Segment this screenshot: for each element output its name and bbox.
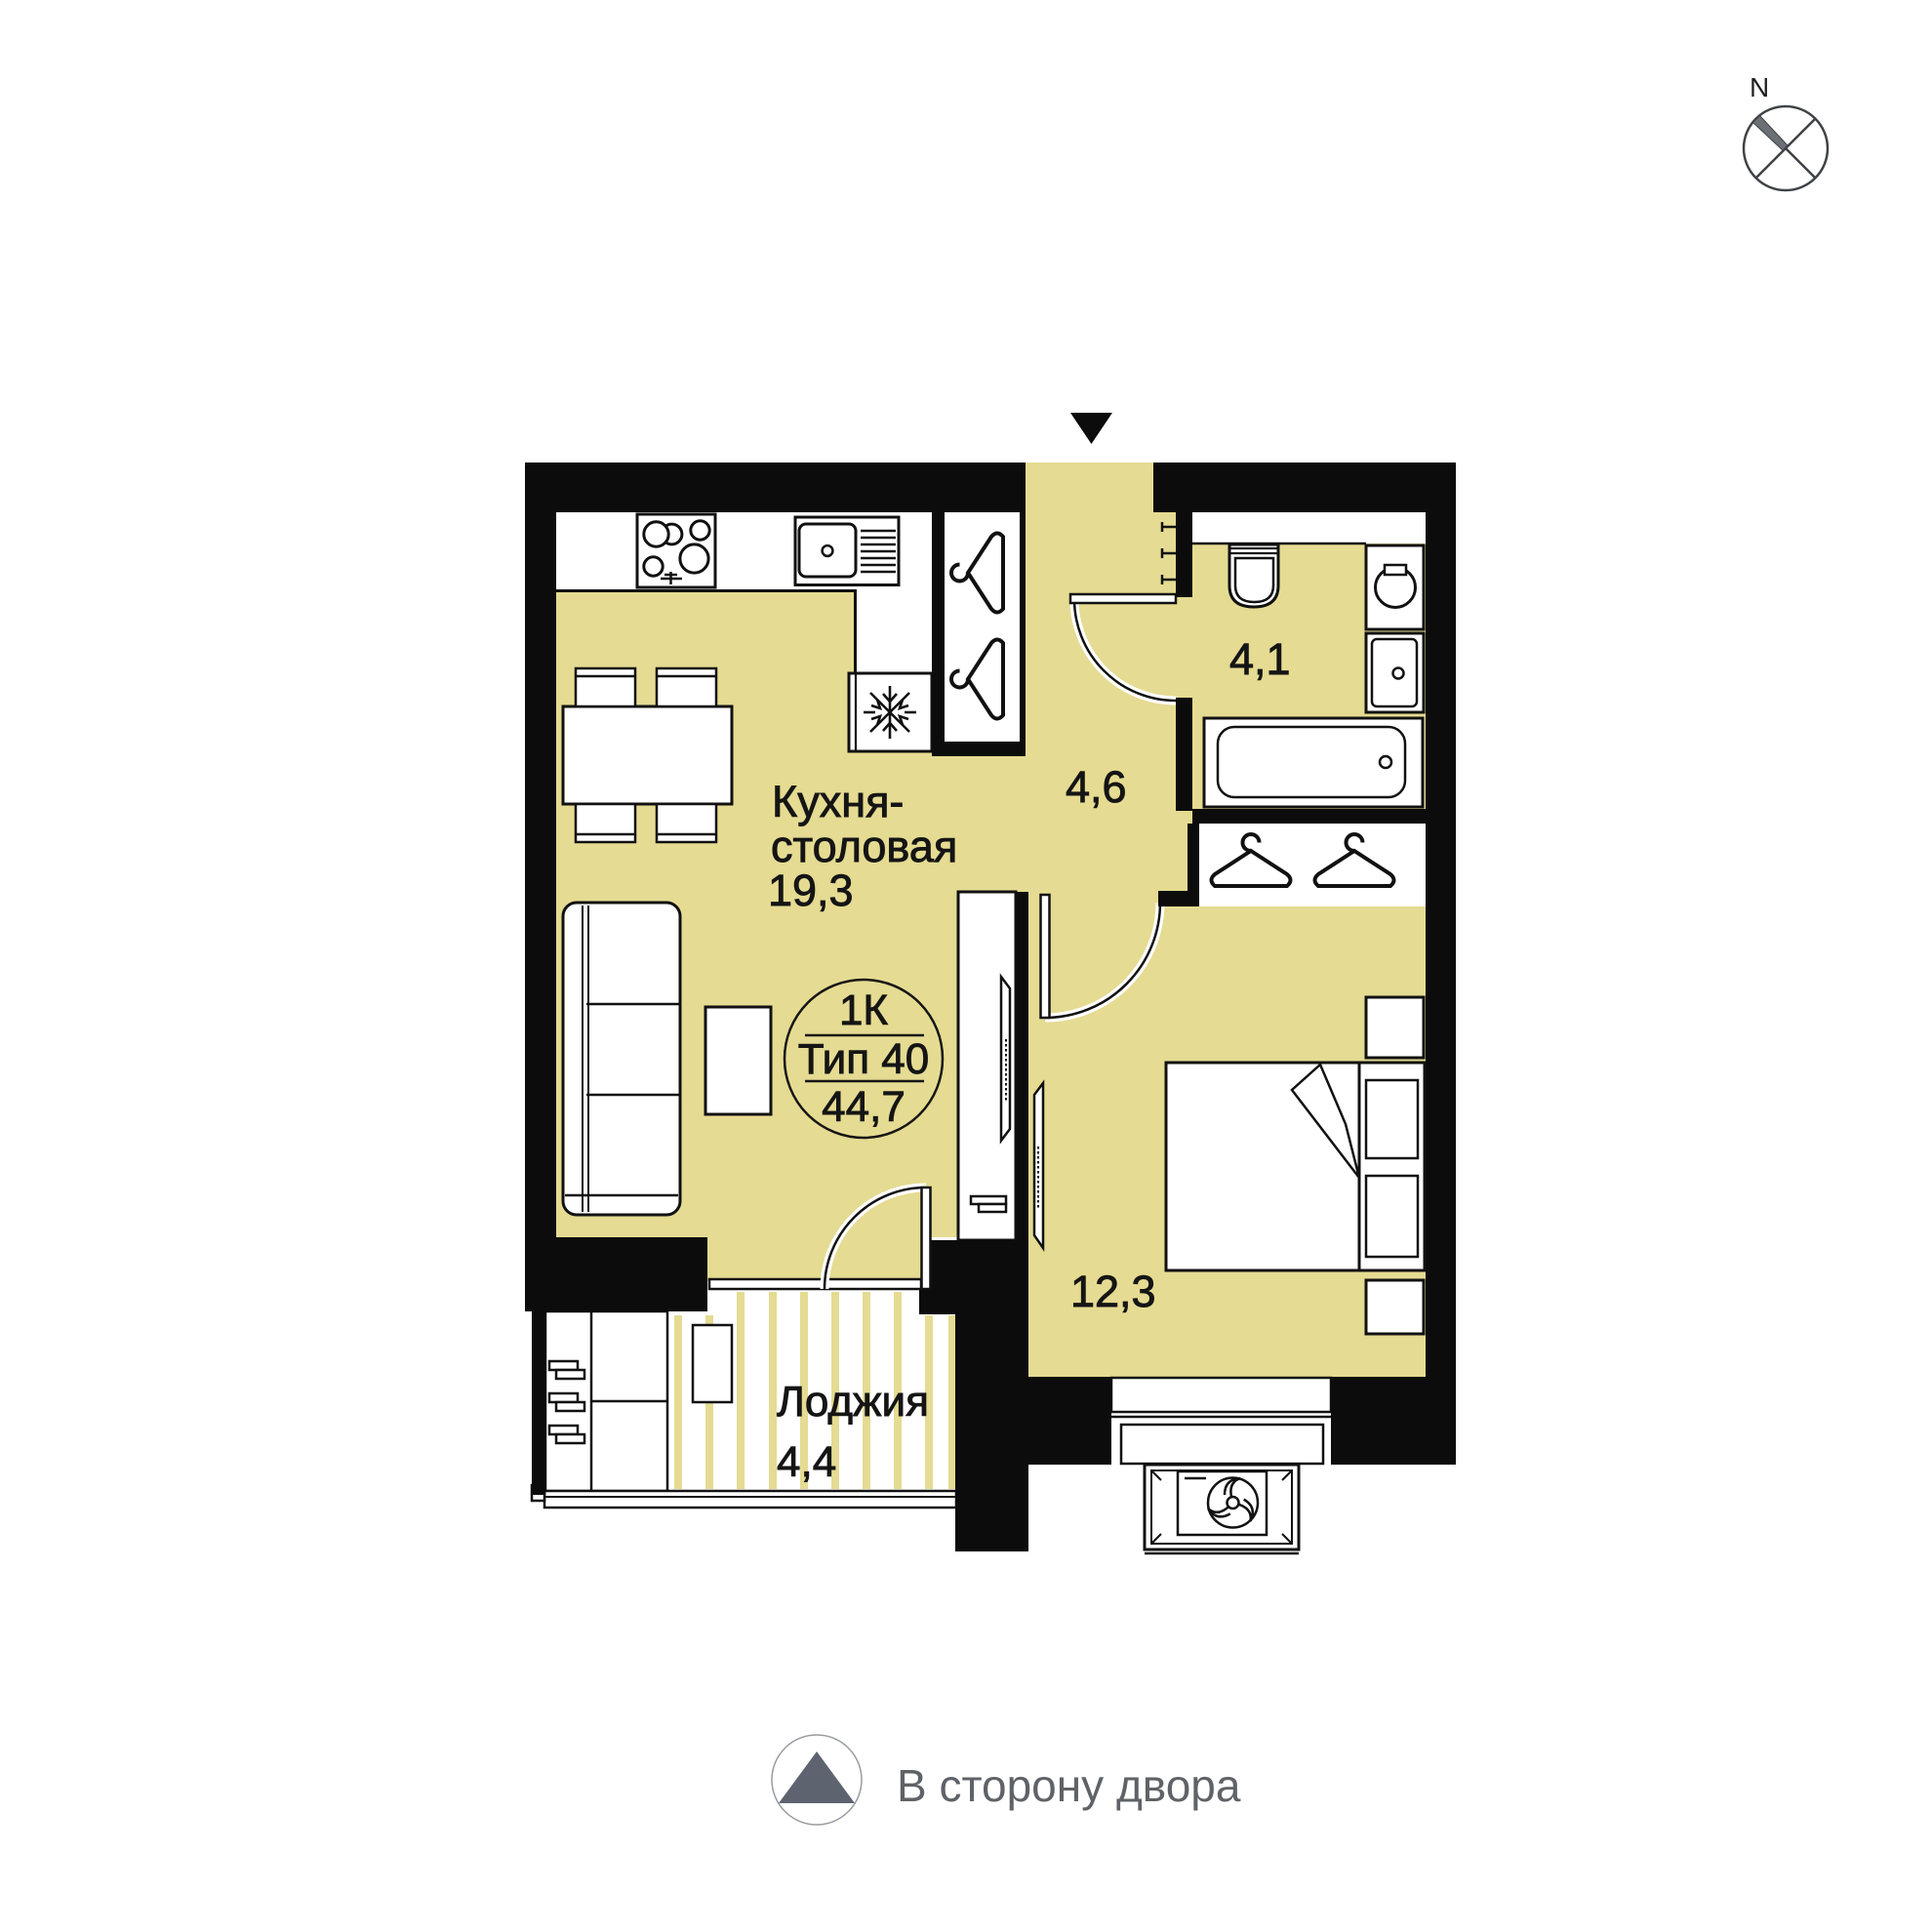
- svg-text:Тип 40: Тип 40: [798, 1035, 930, 1083]
- svg-text:12,3: 12,3: [1070, 1267, 1156, 1316]
- svg-text:столовая: столовая: [771, 822, 957, 871]
- svg-text:4,4: 4,4: [777, 1438, 836, 1486]
- svg-text:Лоджия: Лоджия: [777, 1378, 929, 1426]
- svg-text:N: N: [1750, 72, 1769, 102]
- svg-text:1К: 1К: [839, 986, 888, 1034]
- svg-text:Кухня-: Кухня-: [772, 777, 904, 826]
- svg-text:19,3: 19,3: [768, 865, 854, 915]
- svg-text:44,7: 44,7: [822, 1083, 906, 1131]
- svg-text:4,6: 4,6: [1066, 762, 1127, 812]
- svg-text:В сторону двора: В сторону двора: [897, 1760, 1241, 1811]
- svg-text:4,1: 4,1: [1229, 634, 1291, 684]
